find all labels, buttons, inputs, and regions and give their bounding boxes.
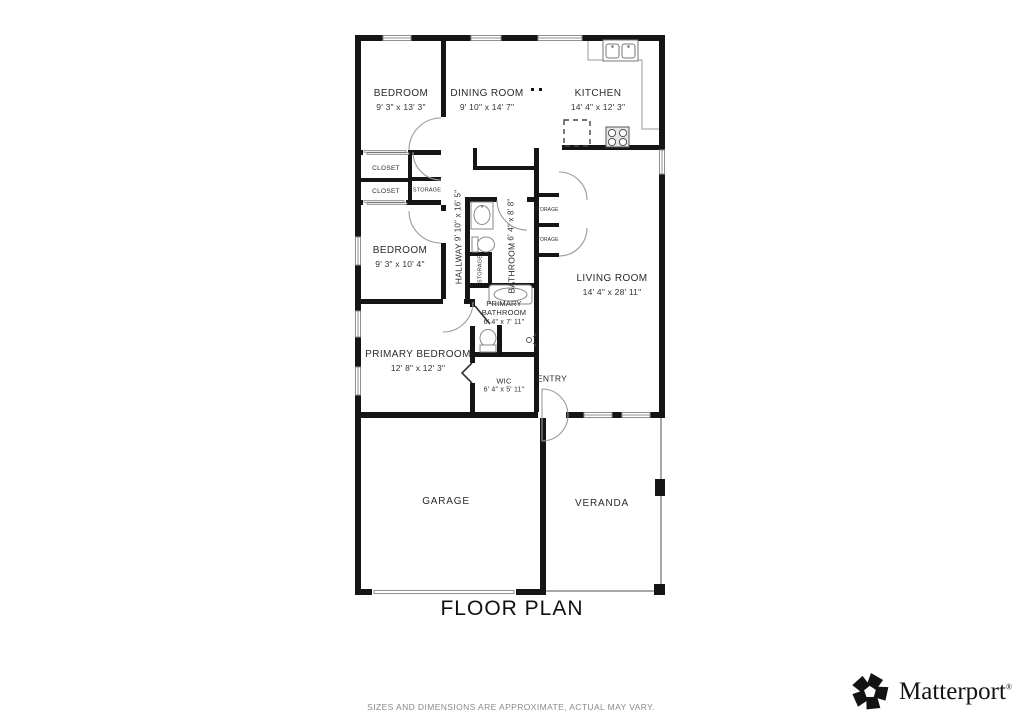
page-title: FLOOR PLAN [440, 597, 583, 621]
sliding-door-icons [363, 150, 409, 205]
stove-icon [606, 127, 629, 147]
room-label-closet1: CLOSET [372, 165, 400, 173]
window-icon [356, 311, 361, 337]
window-icon [471, 36, 501, 41]
window-icon [584, 413, 612, 418]
door-swing-icon [409, 118, 441, 150]
floor-plan-page: BEDROOM 9' 3" x 13' 3" DINING ROOM 9' 10… [0, 0, 1024, 724]
kitchen-sink-icon [603, 40, 638, 61]
room-label-wic: WIC 6' 4" x 5' 11" [473, 376, 535, 395]
room-label-bedroom2: BEDROOM 9' 3" x 10' 4" [373, 245, 427, 269]
door-swing-icon [559, 172, 587, 200]
opening-marker [539, 88, 542, 91]
room-label-bedroom1: BEDROOM 9' 3" x 13' 3" [374, 88, 428, 112]
room-label-storage-bath: STORAGE [467, 266, 495, 273]
room-label-kitchen: KITCHEN 14' 4" x 12' 3" [571, 88, 625, 112]
room-label-veranda: VERANDA [575, 498, 629, 511]
room-label-storage-living1: STORAGE [533, 207, 558, 213]
appliance-dashed-icon [564, 120, 590, 146]
matterport-brand: Matterport® [849, 670, 1012, 714]
bathroom-sink-icon [471, 202, 493, 229]
window-icon [383, 36, 411, 41]
toilet-icon [480, 330, 496, 353]
room-label-storage-living2: STORAGE [533, 237, 558, 243]
door-swing-icon [559, 228, 587, 256]
sliding-door-icon [363, 200, 407, 205]
matterport-pinwheel-icon [849, 670, 891, 714]
room-label-closet2: CLOSET [372, 188, 400, 196]
window-icon [538, 36, 582, 41]
veranda-post [655, 479, 665, 496]
room-label-primary-bedroom: PRIMARY BEDROOM 12' 8" x 12' 3" [365, 349, 471, 373]
window-icon [356, 237, 361, 265]
window-icon [356, 367, 361, 395]
registered-mark: ® [1006, 683, 1012, 692]
disclaimer-text: SIZES AND DIMENSIONS ARE APPROXIMATE, AC… [367, 702, 655, 712]
room-label-living: LIVING ROOM 14' 4" x 28' 11" [576, 273, 647, 297]
room-label-entry: ENTRY [537, 374, 567, 385]
window-icon [622, 413, 650, 418]
room-label-dining: DINING ROOM 9' 10" x 14' 7" [450, 88, 523, 112]
sliding-door-icon [363, 150, 409, 155]
door-swing-icon [443, 302, 473, 332]
room-label-primary-bathroom: PRIMARY BATHROOM 6' 4" x 7' 11" [473, 299, 535, 328]
opening-marker [531, 88, 534, 91]
room-label-garage: GARAGE [422, 496, 470, 509]
room-label-storage-hall: STORAGE [413, 188, 441, 195]
matterport-wordmark: Matterport® [899, 678, 1012, 706]
door-swing-icon [413, 152, 441, 180]
garage-door-icon [372, 589, 516, 595]
veranda-post [654, 584, 665, 595]
window-icon [660, 150, 665, 174]
